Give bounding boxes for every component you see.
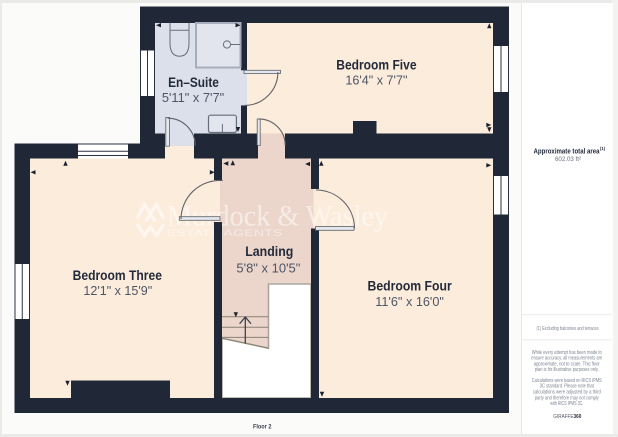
svg-text:Floor 2: Floor 2	[253, 423, 272, 430]
svg-text:with RICS IPMS 3C.: with RICS IPMS 3C.	[550, 401, 584, 407]
svg-text:602.03 ft²: 602.03 ft²	[555, 157, 581, 163]
svg-text:plan is for illustrative purpo: plan is for illustrative purposes only.	[535, 367, 599, 373]
svg-text:GIRAFFE360: GIRAFFE360	[553, 414, 581, 420]
svg-text:Approximate total area: Approximate total area	[534, 147, 601, 156]
svg-text:(1): (1)	[600, 146, 606, 151]
svg-text:(1) Excluding balconies and te: (1) Excluding balconies and terraces	[537, 326, 599, 332]
